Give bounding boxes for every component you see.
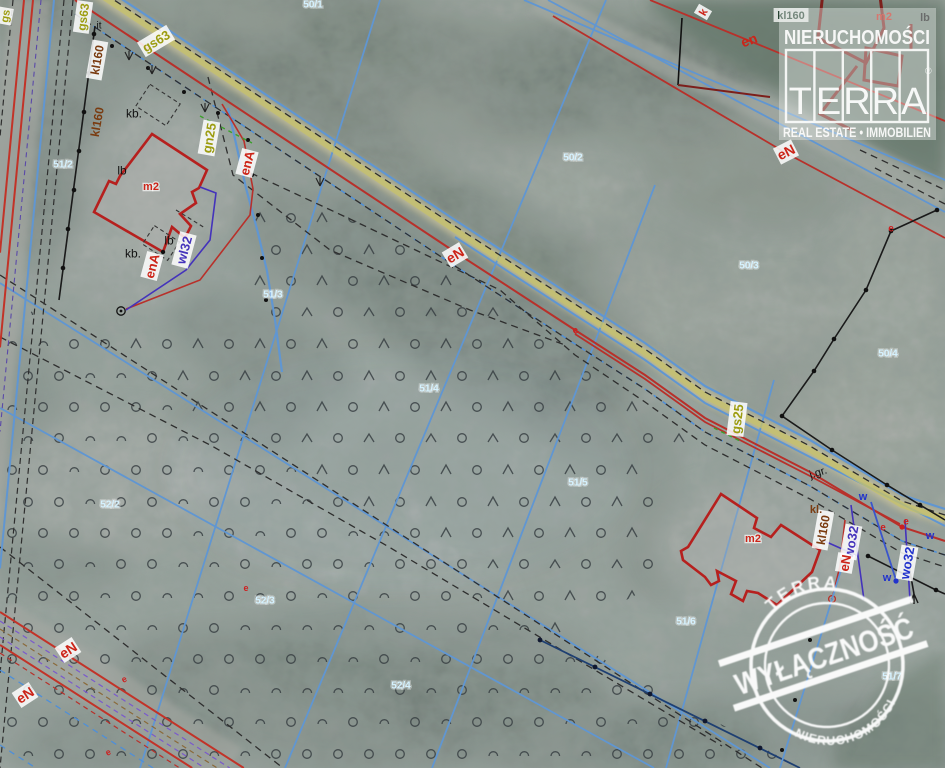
svg-text:kb.: kb. <box>126 106 142 120</box>
svg-text:®: ® <box>925 66 932 76</box>
svg-text:lb: lb <box>117 163 127 177</box>
svg-text:lb: lb <box>164 233 174 247</box>
svg-text:REAL ESTATE • IMMOBILIEN: REAL ESTATE • IMMOBILIEN <box>783 124 931 140</box>
svg-text:51/6: 51/6 <box>676 617 696 628</box>
svg-text:e: e <box>243 583 248 593</box>
svg-text:kl.: kl. <box>810 504 822 516</box>
svg-text:kb.: kb. <box>125 246 141 260</box>
svg-text:51/4: 51/4 <box>419 384 439 395</box>
svg-text:51/2: 51/2 <box>53 160 73 171</box>
svg-text:gs: gs <box>0 9 13 24</box>
svg-text:50/1: 50/1 <box>303 0 323 11</box>
svg-text:NIERUCHOMOŚCI: NIERUCHOMOŚCI <box>784 25 930 49</box>
svg-text:e: e <box>903 517 909 528</box>
svg-text:A: A <box>901 81 927 123</box>
svg-text:e: e <box>880 523 886 534</box>
svg-text:52/2: 52/2 <box>100 500 120 511</box>
svg-text:R: R <box>843 81 870 123</box>
svg-text:50/4: 50/4 <box>878 349 898 360</box>
svg-text:w: w <box>882 572 892 584</box>
svg-text:m2: m2 <box>745 533 761 545</box>
svg-text:50/3: 50/3 <box>739 261 759 272</box>
svg-text:R: R <box>872 81 899 123</box>
svg-text:w: w <box>925 530 935 542</box>
svg-text:51/7: 51/7 <box>882 672 902 683</box>
svg-text:52/4: 52/4 <box>391 681 411 692</box>
svg-text:E: E <box>816 81 841 123</box>
svg-text:51/5: 51/5 <box>568 478 588 489</box>
svg-text:m2: m2 <box>143 181 159 193</box>
svg-text:52/3: 52/3 <box>255 596 275 607</box>
svg-text:eN: eN <box>836 554 854 573</box>
svg-text:w: w <box>858 491 868 503</box>
svg-text:T: T <box>789 81 812 123</box>
svg-text:it: it <box>97 21 102 32</box>
svg-text:50/2: 50/2 <box>563 153 583 164</box>
svg-text:e: e <box>888 224 894 235</box>
svg-text:51/3: 51/3 <box>263 290 283 301</box>
